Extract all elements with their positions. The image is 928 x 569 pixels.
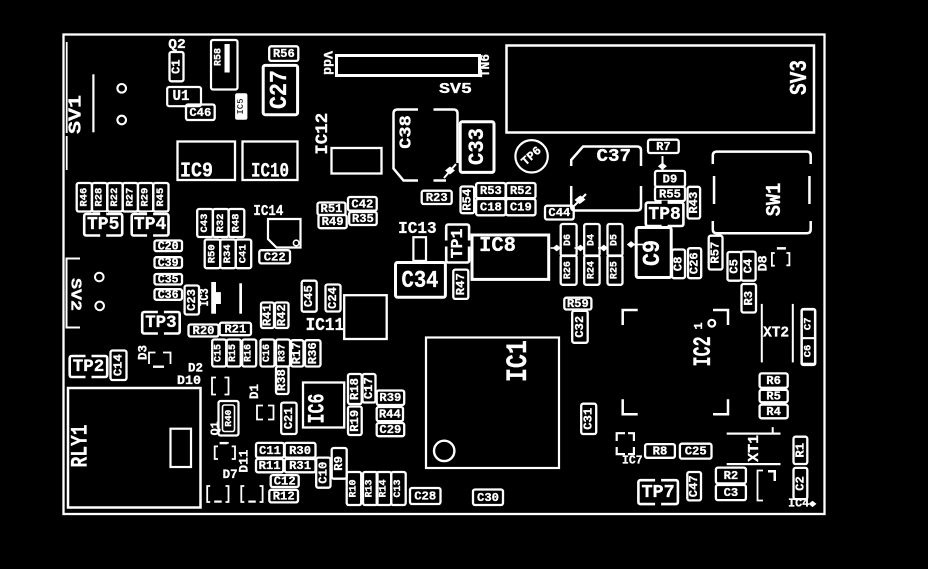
svg-text:1: 1 xyxy=(692,322,706,329)
svg-text:C24: C24 xyxy=(326,287,340,309)
svg-text:SV3: SV3 xyxy=(787,60,814,95)
svg-text:R37: R37 xyxy=(278,344,289,362)
svg-text:D7: D7 xyxy=(223,467,238,482)
svg-text:R57: R57 xyxy=(709,242,723,264)
svg-text:R28: R28 xyxy=(94,188,106,207)
svg-text:C9: C9 xyxy=(640,240,667,266)
svg-text:U1: U1 xyxy=(173,89,190,105)
svg-text:D9: D9 xyxy=(663,172,678,186)
svg-text:R56: R56 xyxy=(273,47,295,61)
svg-text:C35: C35 xyxy=(158,273,179,286)
svg-text:C16: C16 xyxy=(262,344,273,362)
svg-text:IC1: IC1 xyxy=(502,340,536,382)
svg-text:C42: C42 xyxy=(351,197,373,211)
svg-text:C32: C32 xyxy=(573,316,587,338)
svg-text:Q1: Q1 xyxy=(210,421,222,435)
svg-text:C41: C41 xyxy=(237,244,249,263)
svg-text:XT1: XT1 xyxy=(746,435,763,462)
svg-text:R8: R8 xyxy=(653,445,668,459)
svg-text:R10: R10 xyxy=(348,479,359,497)
svg-text:C14: C14 xyxy=(112,354,126,376)
svg-text:C1: C1 xyxy=(170,59,184,74)
svg-text:C15: C15 xyxy=(214,344,225,362)
svg-text:RLY1: RLY1 xyxy=(68,425,94,468)
svg-text:IC4: IC4 xyxy=(788,498,809,511)
svg-text:TP2: TP2 xyxy=(73,357,105,377)
svg-text:C18: C18 xyxy=(480,201,502,215)
svg-text:R9: R9 xyxy=(332,456,346,471)
svg-text:C22: C22 xyxy=(264,250,286,264)
svg-text:R53: R53 xyxy=(480,184,502,198)
svg-text:TP3: TP3 xyxy=(145,313,177,333)
svg-text:C31: C31 xyxy=(582,408,596,430)
svg-text:R46: R46 xyxy=(78,188,90,207)
svg-text:D11: D11 xyxy=(238,450,252,473)
svg-text:R44: R44 xyxy=(379,408,401,422)
svg-text:TP1: TP1 xyxy=(448,229,467,259)
svg-text:C8: C8 xyxy=(672,257,686,272)
svg-text:XT2: XT2 xyxy=(763,325,789,342)
svg-text:R48: R48 xyxy=(230,214,242,233)
svg-text:C13: C13 xyxy=(393,479,404,497)
svg-text:C46: C46 xyxy=(189,106,211,120)
svg-text:R35: R35 xyxy=(352,212,374,226)
svg-text:TP8: TP8 xyxy=(648,205,680,225)
svg-text:D8: D8 xyxy=(757,255,771,271)
svg-text:R11: R11 xyxy=(259,459,281,473)
svg-text:C43: C43 xyxy=(199,214,211,233)
svg-text:C6: C6 xyxy=(802,345,814,358)
svg-text:R17: R17 xyxy=(290,342,304,364)
svg-text:IC5: IC5 xyxy=(236,98,246,114)
svg-text:TP7: TP7 xyxy=(641,482,674,503)
svg-text:R3: R3 xyxy=(742,291,756,306)
svg-text:IC2: IC2 xyxy=(689,336,718,366)
svg-text:R54: R54 xyxy=(460,189,474,211)
svg-text:TP5: TP5 xyxy=(87,215,119,235)
svg-text:C33: C33 xyxy=(464,128,490,165)
svg-text:R50: R50 xyxy=(206,244,218,263)
svg-text:C7: C7 xyxy=(802,317,814,330)
svg-text:R30: R30 xyxy=(289,444,311,458)
svg-text:R36: R36 xyxy=(306,342,320,364)
svg-text:C36: C36 xyxy=(158,288,179,302)
svg-text:C30: C30 xyxy=(477,491,499,505)
svg-text:R4: R4 xyxy=(766,405,781,419)
svg-text:IC7: IC7 xyxy=(622,455,643,468)
svg-text:R19: R19 xyxy=(348,410,362,432)
svg-text:D5: D5 xyxy=(610,234,621,246)
svg-text:C29: C29 xyxy=(379,423,401,437)
svg-text:R32: R32 xyxy=(215,214,227,233)
svg-text:C11: C11 xyxy=(259,444,281,458)
svg-text:R12: R12 xyxy=(273,490,295,504)
svg-text:SV1: SV1 xyxy=(66,95,87,134)
svg-text:C20: C20 xyxy=(158,239,179,253)
svg-text:R41: R41 xyxy=(261,304,275,326)
svg-text:R20: R20 xyxy=(193,324,215,338)
svg-text:C37: C37 xyxy=(597,147,632,167)
svg-text:C10: C10 xyxy=(316,462,330,484)
svg-text:R47: R47 xyxy=(454,273,468,295)
svg-text:R55: R55 xyxy=(659,187,681,201)
svg-text:IC13: IC13 xyxy=(398,219,437,238)
svg-text:R45: R45 xyxy=(155,188,167,207)
svg-text:SW1: SW1 xyxy=(763,183,787,217)
svg-text:R43: R43 xyxy=(687,192,701,214)
svg-text:R29: R29 xyxy=(140,188,152,207)
svg-text:R24: R24 xyxy=(586,261,597,279)
svg-text:R6: R6 xyxy=(766,374,781,388)
svg-text:R5: R5 xyxy=(766,390,781,404)
svg-text:R16: R16 xyxy=(244,344,255,362)
svg-text:TN6: TN6 xyxy=(479,54,493,78)
svg-text:C44: C44 xyxy=(548,206,570,220)
svg-text:R18: R18 xyxy=(348,378,362,400)
svg-text:R14: R14 xyxy=(378,479,389,497)
svg-text:R38: R38 xyxy=(275,369,289,391)
svg-text:C4: C4 xyxy=(741,259,755,274)
svg-text:Q2: Q2 xyxy=(168,38,186,53)
svg-text:C34: C34 xyxy=(402,268,439,295)
svg-text:R1: R1 xyxy=(793,443,807,458)
svg-text:C12: C12 xyxy=(274,475,296,489)
svg-text:D4: D4 xyxy=(586,234,597,246)
svg-text:C27: C27 xyxy=(267,70,294,109)
svg-text:IC6: IC6 xyxy=(304,394,330,424)
svg-text:Vdd: Vdd xyxy=(320,51,335,75)
svg-text:R39: R39 xyxy=(379,391,401,405)
svg-text:C21: C21 xyxy=(282,407,296,429)
svg-text:C28: C28 xyxy=(414,490,436,504)
svg-text:D10: D10 xyxy=(177,374,201,388)
svg-text:R15: R15 xyxy=(228,344,239,362)
svg-text:C5: C5 xyxy=(727,259,741,274)
svg-text:R23: R23 xyxy=(426,191,448,205)
svg-text:R34: R34 xyxy=(222,244,234,263)
svg-text:D6: D6 xyxy=(563,234,574,246)
svg-text:IC9: IC9 xyxy=(180,161,213,184)
svg-text:R58: R58 xyxy=(214,48,225,66)
svg-text:C19: C19 xyxy=(510,201,532,215)
svg-text:SV5: SV5 xyxy=(439,82,472,98)
svg-text:R59: R59 xyxy=(567,297,589,311)
svg-text:R49: R49 xyxy=(322,215,344,229)
svg-text:IC11: IC11 xyxy=(306,316,345,336)
svg-text:IC10: IC10 xyxy=(251,161,289,184)
svg-text:C39: C39 xyxy=(158,256,179,270)
svg-text:C45: C45 xyxy=(302,285,316,307)
svg-text:TP4: TP4 xyxy=(134,215,167,235)
svg-text:R40: R40 xyxy=(223,409,234,426)
svg-text:C26: C26 xyxy=(688,252,702,274)
svg-text:IC12: IC12 xyxy=(313,113,333,155)
svg-text:SV2: SV2 xyxy=(67,278,84,311)
svg-text:IC8: IC8 xyxy=(479,235,516,258)
svg-text:R13: R13 xyxy=(365,479,376,497)
svg-text:R52: R52 xyxy=(510,184,532,198)
svg-text:C38: C38 xyxy=(398,115,417,149)
svg-text:R21: R21 xyxy=(224,322,246,336)
svg-text:IC3: IC3 xyxy=(197,288,212,306)
svg-text:R26: R26 xyxy=(563,261,574,279)
svg-text:R31: R31 xyxy=(289,459,311,473)
svg-text:C3: C3 xyxy=(724,486,739,500)
svg-text:R7: R7 xyxy=(656,140,671,154)
svg-text:R22: R22 xyxy=(109,188,121,207)
svg-text:C25: C25 xyxy=(685,445,707,459)
svg-text:R2: R2 xyxy=(724,469,739,483)
svg-text:R25: R25 xyxy=(610,261,621,279)
svg-text:R27: R27 xyxy=(124,188,136,207)
svg-text:D1: D1 xyxy=(247,384,262,399)
svg-text:C47: C47 xyxy=(687,475,701,497)
svg-text:C2: C2 xyxy=(793,476,807,491)
svg-text:C17: C17 xyxy=(362,377,376,399)
svg-text:R42: R42 xyxy=(275,304,289,326)
svg-text:IC14: IC14 xyxy=(253,204,283,220)
